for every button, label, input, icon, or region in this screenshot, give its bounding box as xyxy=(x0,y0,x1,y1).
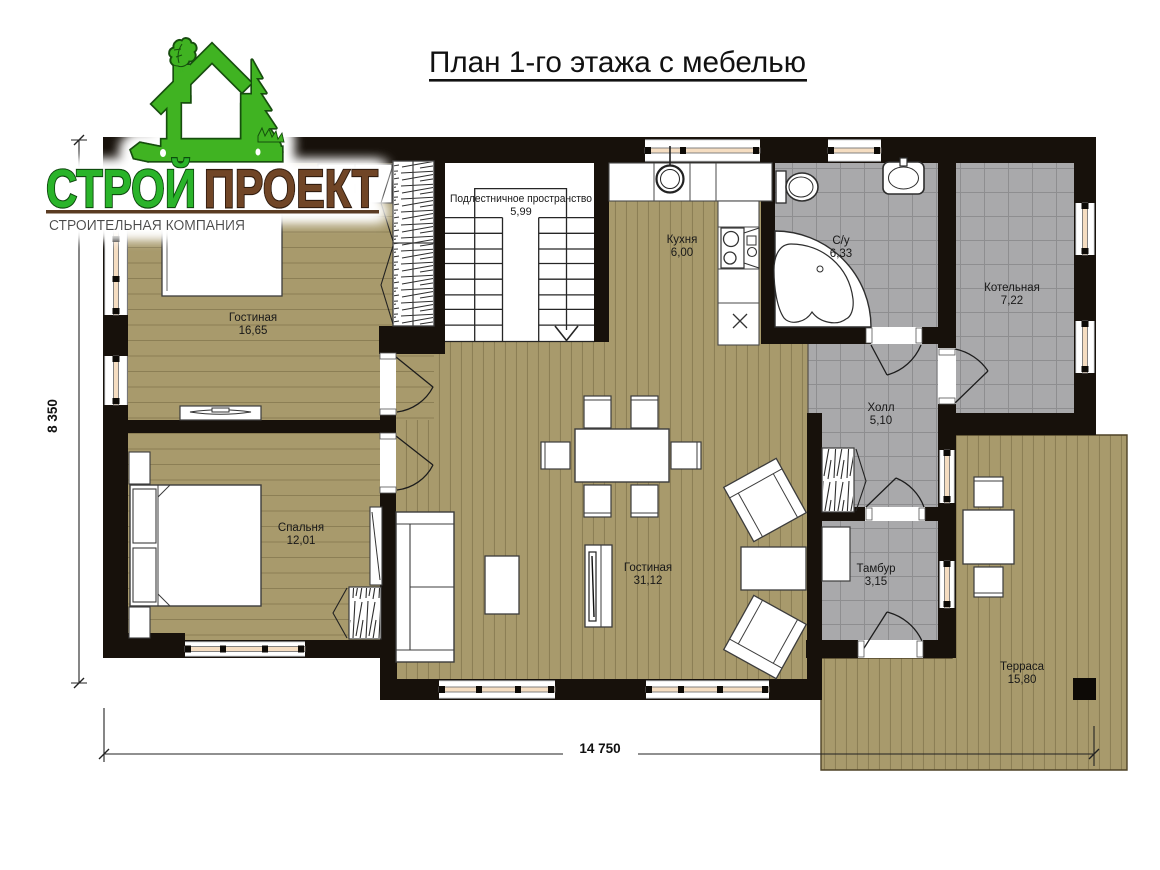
svg-text:15,80: 15,80 xyxy=(1008,674,1037,686)
svg-text:Холл: Холл xyxy=(867,402,894,414)
svg-text:3,15: 3,15 xyxy=(865,576,887,588)
svg-text:5,10: 5,10 xyxy=(870,415,892,427)
svg-text:6,00: 6,00 xyxy=(671,247,693,259)
svg-text:Гостиная: Гостиная xyxy=(229,312,277,324)
svg-text:С/у: С/у xyxy=(832,235,850,247)
svg-text:Подлестничное пространство: Подлестничное пространство xyxy=(450,193,592,205)
svg-text:7,22: 7,22 xyxy=(1001,295,1023,307)
svg-text:14 750: 14 750 xyxy=(579,741,620,756)
svg-text:12,01: 12,01 xyxy=(287,535,316,547)
svg-text:План 1-го этажа с мебелью: План 1-го этажа с мебелью xyxy=(429,46,806,79)
svg-text:Тамбур: Тамбур xyxy=(856,563,895,575)
svg-text:Спальня: Спальня xyxy=(278,522,324,534)
svg-text:8 350: 8 350 xyxy=(45,399,60,433)
svg-text:5,99: 5,99 xyxy=(510,206,531,218)
svg-text:Терраса: Терраса xyxy=(1000,661,1045,673)
svg-text:Кухня: Кухня xyxy=(667,234,698,246)
svg-text:Гостиная: Гостиная xyxy=(624,562,672,574)
svg-text:16,65: 16,65 xyxy=(239,325,268,337)
svg-text:6,33: 6,33 xyxy=(830,248,852,260)
svg-text:31,12: 31,12 xyxy=(634,575,663,587)
svg-text:СТРОИТЕЛЬНАЯ КОМПАНИЯ: СТРОИТЕЛЬНАЯ КОМПАНИЯ xyxy=(49,217,245,234)
svg-text:СТРОЙ: СТРОЙ xyxy=(46,158,196,219)
svg-text:Котельная: Котельная xyxy=(984,282,1040,294)
